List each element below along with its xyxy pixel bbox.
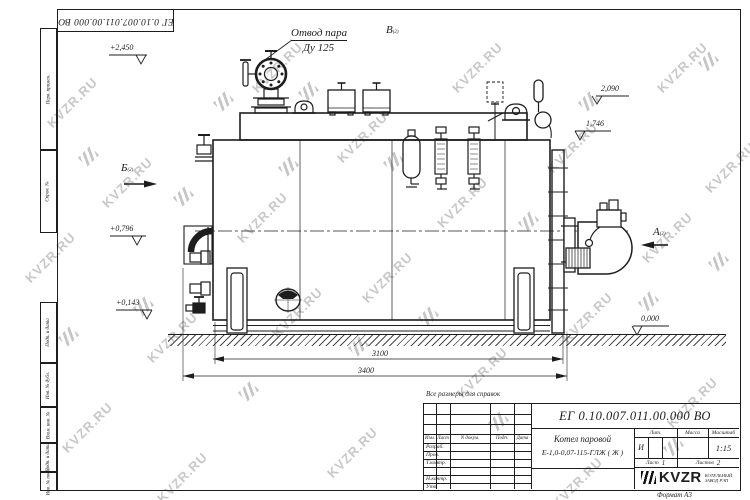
pressure-gauge-siphon [534, 80, 551, 138]
scale-value: 1:15 [708, 437, 739, 458]
left-elbow-pipe [184, 226, 212, 264]
product-name-line2: Е-1,0-0,07-115-ГЛЖ ( Ж ) [531, 445, 634, 459]
product-name-line1: Котел паровой [531, 431, 634, 446]
burner-assembly [561, 200, 632, 274]
view-marker-b: Б(2) [121, 162, 133, 174]
lit-label: Лит. [634, 428, 677, 437]
left-fittings [186, 135, 213, 313]
col-list: Лист [436, 434, 450, 443]
elevation-0796: +0,796 [110, 224, 133, 233]
water-level-gauges [435, 127, 480, 189]
support-legs [227, 268, 534, 333]
row-razrab: Разраб. [424, 443, 452, 451]
elevation-2450: +2,450 [110, 43, 133, 52]
sheet-number: Лист1 [634, 458, 677, 467]
elevation-0143: +0,143 [116, 298, 139, 307]
format-note: Формат А3 [657, 491, 692, 499]
lit-value: И [634, 437, 648, 458]
col-ndoc: N докум. [450, 434, 490, 443]
manhole [274, 287, 302, 313]
col-podp: Подп. [490, 434, 514, 443]
reference-note: Все размеры для справок [426, 390, 500, 398]
view-marker-a: А(2) [653, 226, 666, 238]
elevation-1746: 1,746 [586, 119, 604, 128]
elevation-2090: 2,090 [601, 84, 619, 93]
dimension-3100: 3100 [372, 349, 388, 358]
dimension-3400: 3400 [358, 366, 374, 375]
col-data: Дата [514, 434, 531, 443]
kvzr-logo: KVZR КОТЕЛЬНЫЙ ЗАВОД РЭП [634, 467, 739, 488]
steam-outlet-label-line1: Отвод пара [291, 27, 347, 39]
row-prov: Пров. [424, 451, 452, 459]
steam-outlet-valve [240, 51, 291, 113]
mass-label: Масса [677, 428, 708, 437]
separator-vessel [403, 130, 420, 187]
phantom-box-and-lever [487, 82, 503, 140]
kvzr-logo-sub2: ЗАВОД РЭП [705, 478, 732, 483]
row-utv: Утв. [424, 483, 452, 491]
view-marker-v: В(2) [386, 24, 399, 36]
steam-drum-platform [240, 113, 527, 140]
col-izm: Изм. [424, 434, 436, 443]
kvzr-logo-text: KVZR [659, 469, 702, 486]
kvzr-logo-stripes-icon [641, 471, 656, 484]
elevation-0000: 0,000 [641, 314, 659, 323]
safety-valve-boxes [328, 83, 390, 115]
boiler-shell [195, 140, 628, 331]
row-nkontr: Н.контр. [424, 475, 452, 483]
title-doc-number: ЕГ 0.10.007.011.00.000 ВО [531, 404, 739, 428]
steam-outlet-label-line2: Ду 125 [303, 42, 334, 54]
title-block: Изм. Лист N докум. Подп. Дата Разраб. Пр… [423, 403, 741, 491]
row-tkontr: Т.контр. [424, 459, 452, 467]
drawing-sheet: KVZR.RUKVZR.RUKVZR.RUKVZR.RUKVZR.RUKVZR.… [0, 0, 750, 500]
sheets-total: Листов2 [677, 458, 739, 467]
scale-label: Масштаб [708, 428, 739, 437]
